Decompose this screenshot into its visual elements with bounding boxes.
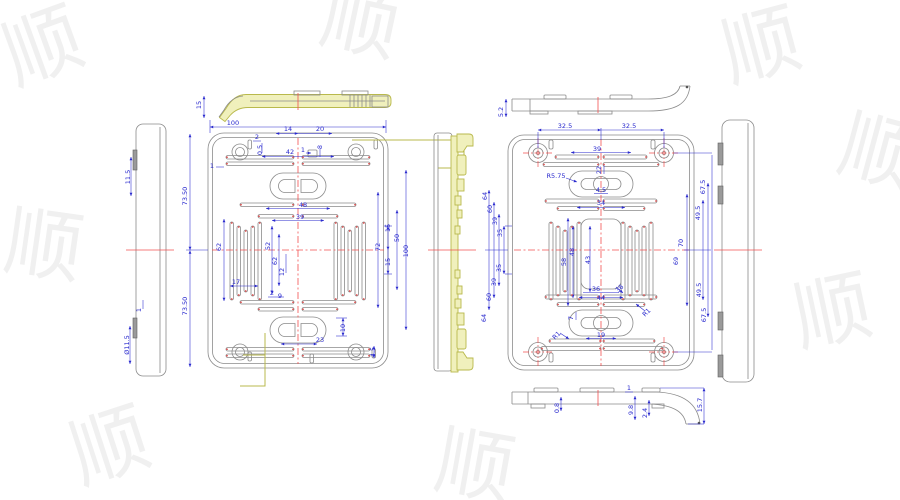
point-marker	[550, 222, 552, 224]
clip-tab	[133, 318, 137, 338]
point-marker	[603, 164, 605, 166]
point-marker	[603, 304, 605, 306]
watermark-glyph: 顺	[829, 99, 900, 206]
left-main-view	[208, 133, 464, 386]
point-marker	[543, 164, 545, 166]
point-marker	[636, 230, 638, 232]
point-marker	[292, 163, 294, 165]
dimension-label: 39	[490, 278, 498, 286]
point-marker	[643, 208, 645, 210]
point-marker	[555, 156, 557, 158]
dimension-label: 20	[316, 125, 324, 133]
dimension-annotations: 11.51Ø11.515100142020.54218173.5073.5048…	[123, 101, 708, 418]
dimension-label: 34	[597, 199, 605, 207]
point-marker	[245, 230, 247, 232]
point-marker	[622, 298, 624, 300]
point-marker	[292, 204, 294, 206]
point-marker	[629, 294, 631, 296]
point-marker	[603, 156, 605, 158]
point-marker	[650, 298, 652, 300]
bottom-right-profile-view	[512, 388, 704, 424]
dimension-label: 67.5	[699, 180, 707, 194]
point-marker	[657, 164, 659, 166]
point-marker	[629, 226, 631, 228]
dimension-label: 64	[481, 192, 489, 200]
dimension-label: 73.50	[181, 297, 189, 316]
dimension-label: 35	[495, 264, 503, 272]
clip-tab	[718, 186, 723, 204]
point-marker	[557, 304, 559, 306]
dimension-label: 72	[374, 243, 382, 251]
point-marker	[302, 163, 304, 165]
point-marker	[655, 200, 657, 202]
point-marker	[597, 208, 599, 210]
point-marker	[302, 355, 304, 357]
clip-tab	[718, 143, 723, 165]
point-marker	[356, 226, 358, 228]
dimension-label: 49.5	[695, 283, 703, 297]
point-marker	[597, 156, 599, 158]
dimension-label: 4.5	[596, 186, 606, 194]
point-marker	[363, 298, 365, 300]
cad-drawing-canvas: 顺顺顺顺顺顺顺顺	[0, 0, 900, 500]
point-marker	[354, 204, 356, 206]
point-marker	[578, 222, 580, 224]
dimension-label: 70	[677, 239, 685, 247]
dimension-label: 44	[597, 294, 605, 302]
dimension-label: 58	[560, 258, 568, 266]
point-marker	[259, 222, 261, 224]
point-marker	[541, 348, 543, 350]
dimension-label: 9	[278, 292, 282, 300]
point-marker	[342, 294, 344, 296]
dimension-label: 8	[316, 145, 324, 149]
dimension-label: 15	[195, 101, 203, 109]
dimension-label: 1	[627, 384, 631, 392]
top-left-profile-view	[204, 91, 391, 122]
point-marker	[240, 204, 242, 206]
watermark-glyph: 顺	[712, 0, 811, 100]
left-side-view	[126, 124, 174, 376]
point-marker	[240, 301, 242, 303]
dimension-label: 62	[271, 257, 279, 265]
point-marker	[231, 222, 233, 224]
point-marker	[363, 222, 365, 224]
dimension-label: 7	[567, 316, 575, 320]
dimension-label: 50	[393, 234, 401, 242]
point-marker	[356, 294, 358, 296]
dimension-label: Ø11.5	[123, 335, 131, 355]
dimension-label: 69	[672, 257, 680, 265]
point-marker	[292, 355, 294, 357]
watermark-glyph: 顺	[785, 260, 880, 364]
point-marker	[292, 301, 294, 303]
dimension-label: 100	[227, 119, 239, 127]
dimension-label: 39	[296, 213, 304, 221]
dimension-label: 15	[384, 224, 392, 232]
mounting-hole	[232, 144, 248, 160]
dimension-label: 11.5	[124, 170, 132, 184]
point-marker	[578, 298, 580, 300]
point-marker	[655, 296, 657, 298]
dimension-label: 1	[210, 162, 214, 170]
point-marker	[636, 290, 638, 292]
dimension-label: 5.2	[497, 107, 505, 117]
dimension-label: 2.4	[641, 408, 649, 418]
watermark-glyph: 顺	[313, 0, 408, 75]
dimension-label: 32.5	[622, 122, 636, 130]
point-marker	[302, 308, 304, 310]
dimension-label: 12	[278, 268, 286, 276]
point-marker	[292, 156, 294, 158]
mid-section-view	[428, 133, 476, 372]
dimension-label: 35	[496, 229, 504, 237]
dimension-label: 17	[232, 278, 240, 286]
point-marker	[603, 208, 605, 210]
dimension-label: 60	[486, 205, 494, 213]
point-marker	[252, 294, 254, 296]
watermark-glyph: 顺	[0, 196, 89, 296]
dimension-label: 64	[480, 314, 488, 322]
point-marker	[226, 163, 228, 165]
point-marker	[292, 215, 294, 217]
dimension-label: 23	[316, 336, 324, 344]
point-marker	[597, 164, 599, 166]
point-marker	[252, 226, 254, 228]
dimension-label: 15.7	[696, 398, 704, 412]
dimension-label: 4.5	[369, 347, 377, 357]
point-marker	[622, 222, 624, 224]
point-marker	[292, 308, 294, 310]
point-marker	[335, 298, 337, 300]
cad-drawing: 顺顺顺顺顺顺顺顺	[0, 0, 900, 500]
point-marker	[349, 290, 351, 292]
point-marker	[238, 226, 240, 228]
point-marker	[643, 304, 645, 306]
dimension-label: 1	[301, 146, 305, 154]
dimension-label: 2	[270, 289, 274, 297]
point-marker	[545, 296, 547, 298]
point-marker	[564, 230, 566, 232]
dimension-label: R1	[551, 330, 563, 342]
point-marker	[336, 308, 338, 310]
point-marker	[354, 301, 356, 303]
point-marker	[550, 298, 552, 300]
point-marker	[557, 294, 559, 296]
point-marker	[336, 215, 338, 217]
watermark-glyph: 顺	[428, 415, 520, 500]
dimension-label: R1	[641, 307, 653, 319]
point-marker	[368, 163, 370, 165]
point-marker	[231, 298, 233, 300]
point-marker	[643, 294, 645, 296]
watermark-glyph: 顺	[0, 0, 95, 103]
right-side-view	[714, 120, 762, 382]
dimension-label: 1	[135, 308, 143, 312]
clip-tab	[718, 312, 723, 330]
dimension-label: 39	[593, 145, 601, 153]
dimension-label: 0.5	[256, 145, 264, 155]
point-marker	[549, 340, 551, 342]
point-marker	[599, 348, 601, 350]
dimension-label: R5.75	[547, 172, 566, 180]
dimension-label: 62	[215, 243, 223, 251]
point-marker	[238, 294, 240, 296]
point-marker	[302, 301, 304, 303]
dimension-label: 60	[485, 293, 493, 301]
point-marker	[597, 304, 599, 306]
dimension-label: 39	[491, 217, 499, 225]
point-marker	[226, 348, 228, 350]
point-marker	[603, 348, 605, 350]
dimension-label: 67.5	[700, 308, 708, 322]
point-marker	[650, 222, 652, 224]
point-marker	[302, 156, 304, 158]
dimension-label: 36	[592, 285, 600, 293]
clip-tab	[133, 150, 137, 170]
clip-tab	[718, 355, 723, 377]
point-marker	[557, 226, 559, 228]
dimension-label: 15	[384, 258, 392, 266]
point-marker	[599, 340, 601, 342]
point-marker	[342, 226, 344, 228]
point-marker	[302, 348, 304, 350]
dimension-label: 48	[568, 248, 576, 256]
point-marker	[571, 294, 573, 296]
dimension-label: 42	[286, 148, 294, 156]
dimension-label: 48	[299, 201, 307, 209]
point-marker	[557, 208, 559, 210]
watermark-glyph: 顺	[59, 392, 161, 500]
dimension-label: 0.8	[553, 403, 561, 413]
dimension-label: 100	[402, 245, 410, 257]
dimension-label: 73.50	[181, 187, 189, 206]
point-marker	[258, 308, 260, 310]
point-marker	[226, 355, 228, 357]
point-marker	[258, 215, 260, 217]
point-marker	[661, 348, 663, 350]
point-marker	[545, 200, 547, 202]
point-marker	[292, 348, 294, 350]
mounting-hole	[348, 144, 364, 160]
dimension-label: 32.5	[558, 122, 572, 130]
dimension-label: 49.5	[694, 206, 702, 220]
point-marker	[564, 290, 566, 292]
point-marker	[335, 222, 337, 224]
dimension-label: 10	[339, 324, 347, 332]
point-marker	[226, 156, 228, 158]
point-marker	[643, 226, 645, 228]
point-marker	[571, 226, 573, 228]
dimension-label: 43	[584, 256, 592, 264]
mounting-hole	[523, 337, 553, 367]
dimension-label: 22	[595, 166, 603, 174]
dimension-label: 52	[264, 242, 272, 250]
point-marker	[368, 156, 370, 158]
point-marker	[603, 340, 605, 342]
point-marker	[653, 340, 655, 342]
dimension-label: 2	[255, 133, 259, 141]
point-marker	[259, 298, 261, 300]
point-marker	[645, 156, 647, 158]
dimension-label: 9.8	[627, 405, 635, 415]
point-marker	[349, 230, 351, 232]
dimension-label: 14	[284, 125, 292, 133]
top-right-profile-view	[506, 86, 690, 117]
dimension-label: 19	[597, 331, 605, 339]
point-marker	[245, 290, 247, 292]
